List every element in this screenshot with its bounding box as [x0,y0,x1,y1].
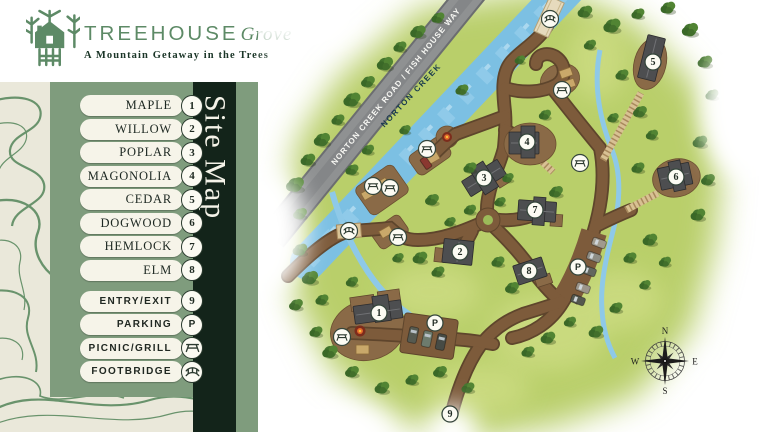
legend-item-magonolia: MAGONOLIA4 [80,166,203,187]
picnic-marker [365,178,382,195]
fire-pit-south [355,326,366,337]
footbridge-marker [542,11,559,28]
svg-text:3: 3 [482,173,487,184]
map-marker-site-8: 8 [521,263,537,279]
footbridge-icon [181,361,203,383]
picnic-marker [419,141,436,158]
svg-text:2: 2 [458,247,463,258]
picnic-marker [334,329,351,346]
legend-label: PARKING [80,314,183,335]
legend-item-maple: MAPLE1 [80,95,203,116]
compass-w: W [631,357,640,367]
brand-name: TREEHOUSE [84,22,239,45]
svg-text:5: 5 [651,57,656,68]
legend-label: POPLAR [80,142,183,163]
compass-s: S [662,386,667,396]
svg-text:7: 7 [533,205,538,216]
legend-item-footbridge: FOOTBRIDGE [80,361,203,382]
map-marker-parking-south: P [427,315,443,331]
map-marker-site-4: 4 [519,134,535,150]
treehouse-logo-icon [26,8,80,68]
legend-label: MAPLE [80,95,183,116]
picnic-marker [572,155,589,172]
page: { "brand": { "title": "TREEHOUSE", "titl… [0,0,768,432]
legend-badge: 1 [181,95,203,117]
legend-badge: 3 [181,142,203,164]
legend-item-entry-exit: ENTRY/EXIT9 [80,291,203,312]
legend-label: FOOTBRIDGE [80,361,183,382]
legend-badge: 5 [181,189,203,211]
legend-badge: 7 [181,236,203,258]
legend-item-parking: PARKINGP [80,314,203,335]
picnic-table-icon [181,337,203,359]
svg-text:6: 6 [674,172,679,183]
legend-item-willow: WILLOW2 [80,119,203,140]
legend-item-elm: ELM8 [80,260,203,281]
map-marker-entry-9: 9 [442,406,458,422]
map-marker-site-2: 2 [452,244,468,260]
fire-pit-north [442,132,452,142]
compass-e: E [692,357,698,367]
sidebar-right-strip [236,82,258,432]
map-marker-site-7: 7 [527,202,543,218]
svg-text:4: 4 [525,137,530,148]
picnic-marker [382,180,399,197]
svg-text:9: 9 [448,409,453,420]
legend-badge: 9 [181,290,203,312]
map-marker-site-3: 3 [476,170,492,186]
svg-text:P: P [432,318,438,328]
svg-text:8: 8 [527,266,532,277]
legend-item-hemlock: HEMLOCK7 [80,236,203,257]
picnic-marker [390,229,407,246]
picnic-marker [554,82,571,99]
site-map-illustration: NORTON CREEK ROAD / FISH HOUSE WAY NORTO… [258,0,768,432]
legend-item-poplar: POPLAR3 [80,142,203,163]
map-marker-parking-east: P [570,259,586,275]
svg-text:P: P [575,262,581,272]
map-marker-site-6: 6 [668,169,684,185]
legend-item-picnic-grill: PICNIC/GRILL [80,338,203,359]
legend-label: ELM [80,260,183,281]
map-marker-site-5: 5 [645,54,661,70]
compass-n: N [662,326,669,336]
legend-item-dogwood: DOGWOOD6 [80,213,203,234]
legend-label: CEDAR [80,189,183,210]
legend-badge: P [181,314,203,336]
legend-label: WILLOW [80,119,183,140]
legend-label: MAGONOLIA [80,166,183,187]
legend-badge: 8 [181,259,203,281]
legend-badge: 6 [181,212,203,234]
legend-badge: 4 [181,165,203,187]
footbridge-marker [341,223,358,240]
legend-item-cedar: CEDAR5 [80,189,203,210]
map-marker-site-1: 1 [371,305,387,321]
legend-badge: 2 [181,118,203,140]
legend-label: DOGWOOD [80,213,183,234]
brand-tagline: A Mountain Getaway in the Trees [84,50,269,61]
legend-label: PICNIC/GRILL [80,338,183,359]
legend-label: ENTRY/EXIT [80,291,183,312]
svg-text:1: 1 [377,308,382,319]
legend-label: HEMLOCK [80,236,183,257]
